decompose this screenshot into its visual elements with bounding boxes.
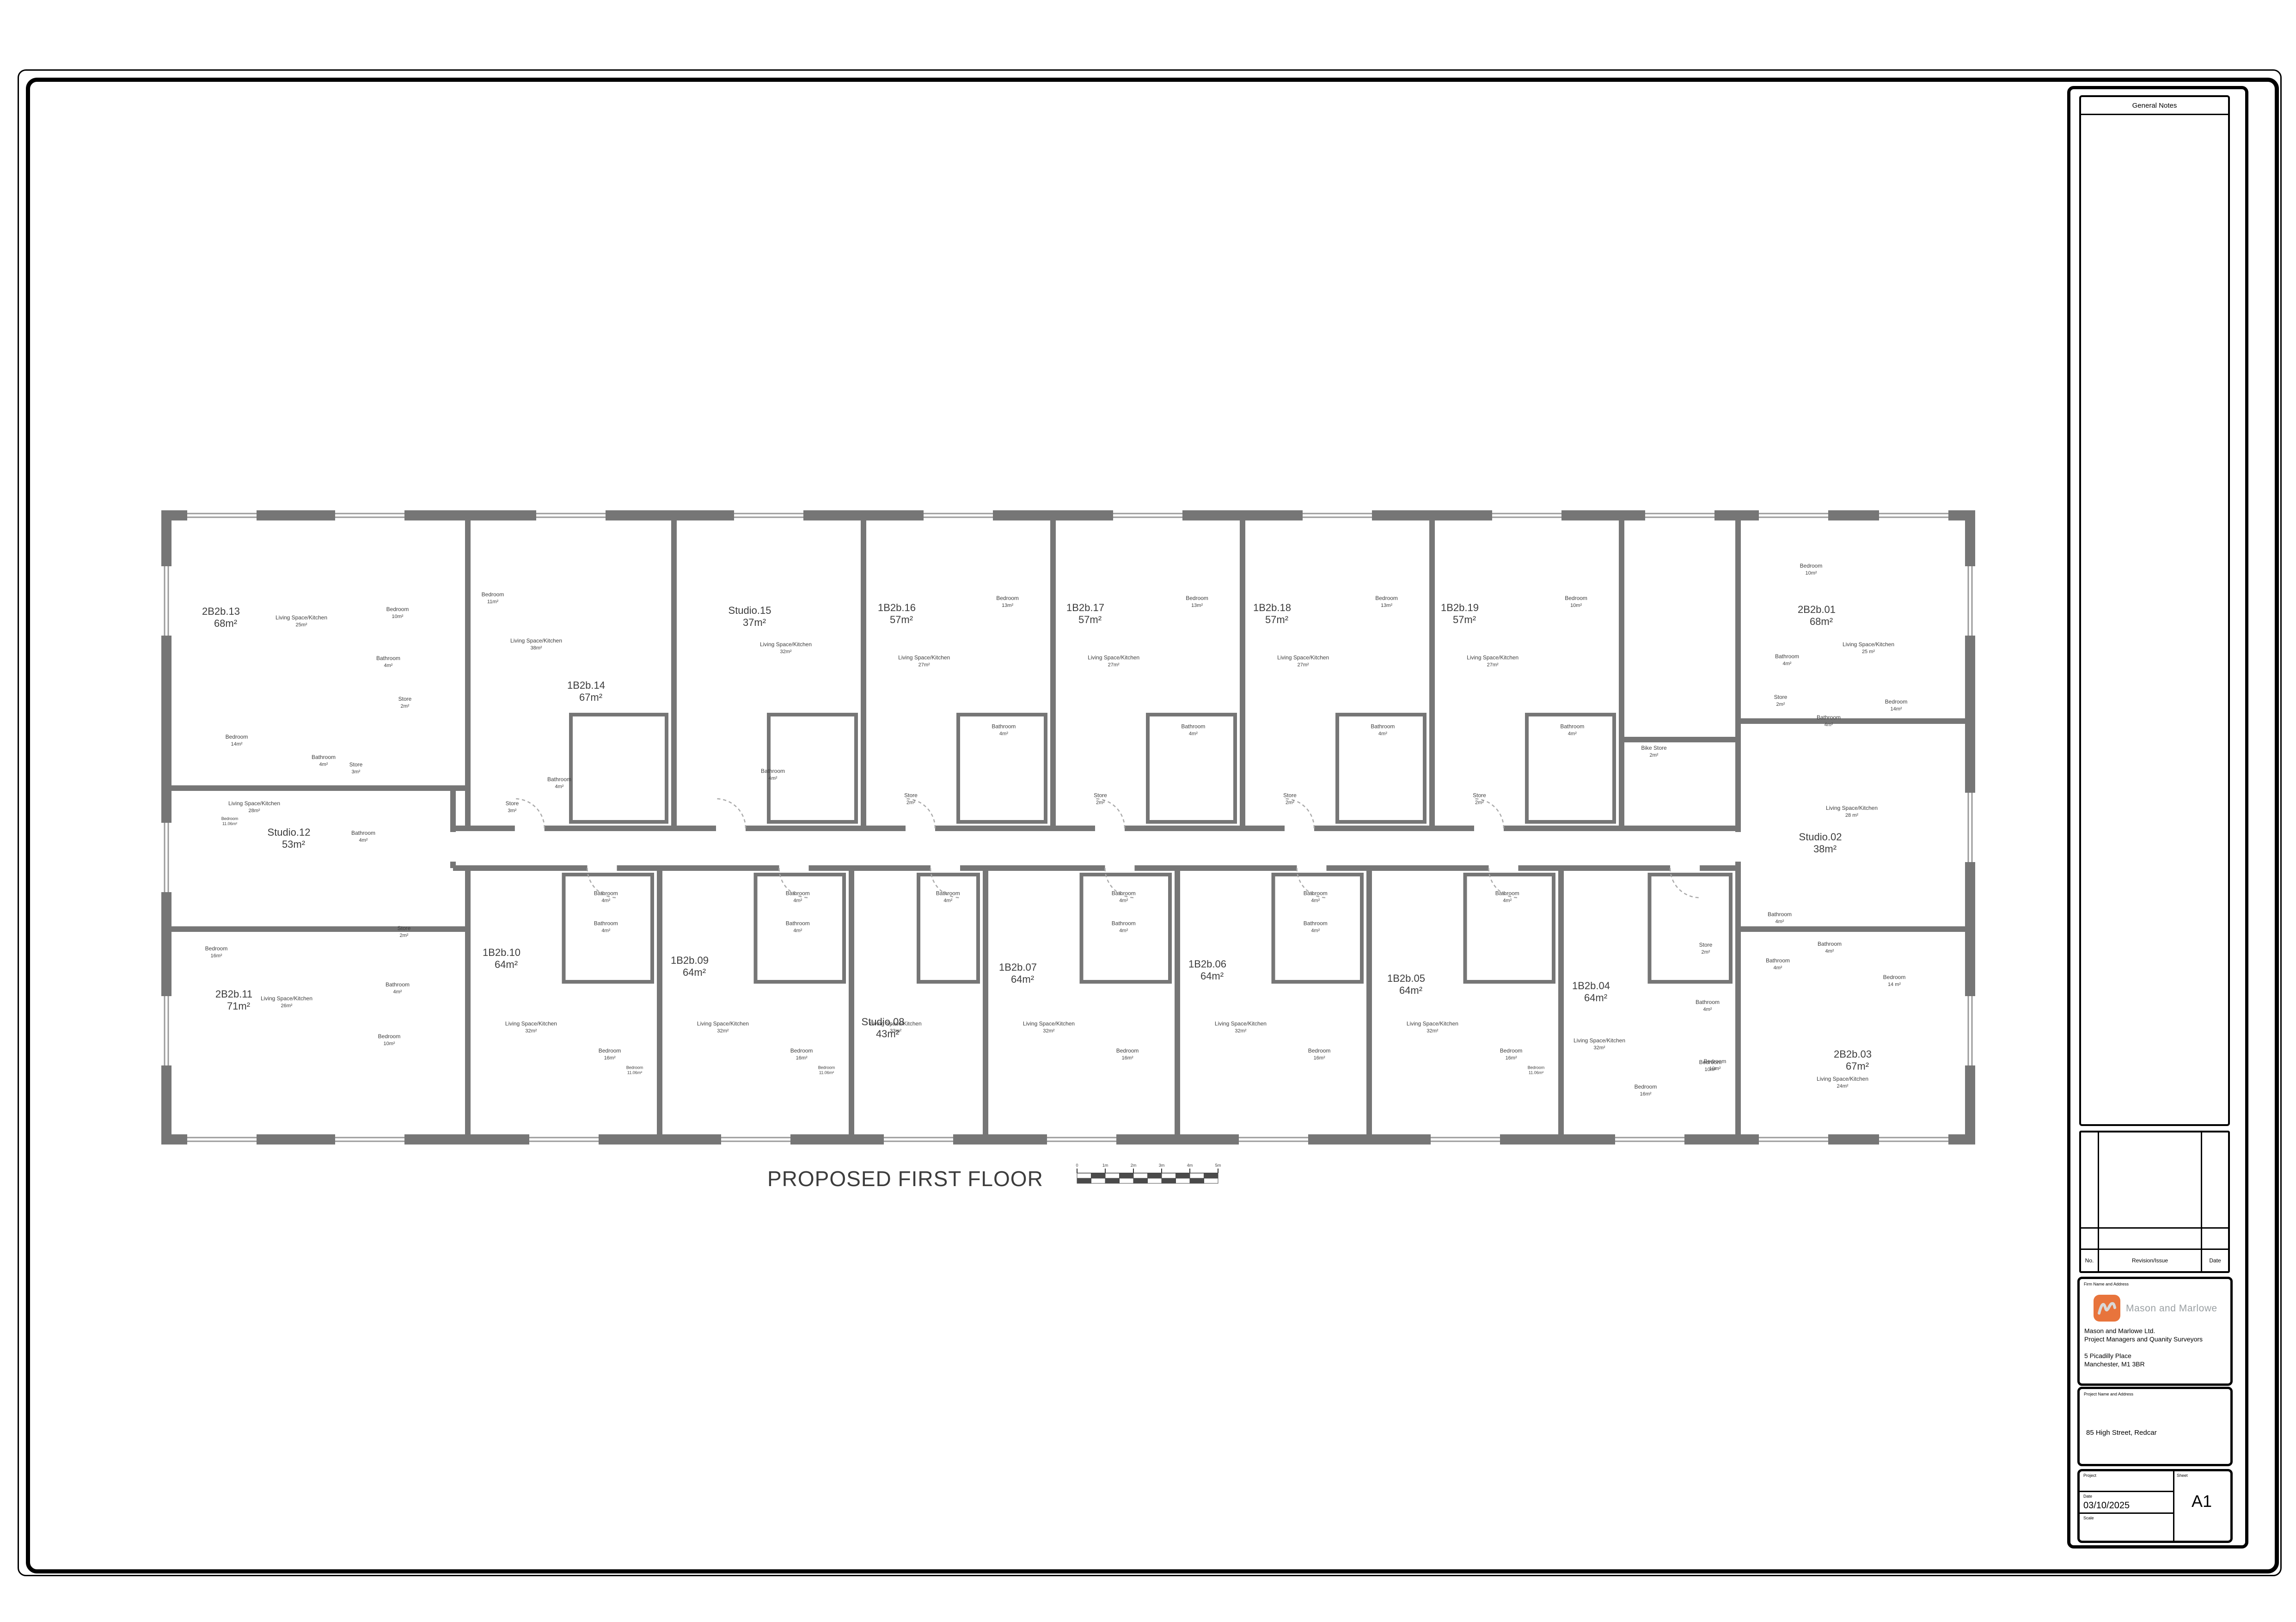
project-name: 85 High Street, Redcar	[2086, 1429, 2157, 1437]
info-sheet-cell: Sheet A1	[2173, 1471, 2230, 1541]
general-notes-box: General Notes	[2079, 95, 2230, 1126]
info-block: Project Date 03/10/2025 Scale Sheet A1	[2077, 1469, 2233, 1543]
info-date-label: Date	[2083, 1494, 2092, 1499]
firm-address-line2: Manchester, M1 3BR	[2084, 1360, 2145, 1368]
revision-table: No. Revision/Issue Date	[2079, 1131, 2230, 1273]
info-scale-label: Scale	[2083, 1516, 2094, 1520]
general-notes-title: General Notes	[2081, 97, 2228, 115]
mason-marlowe-logo-icon	[2094, 1295, 2120, 1322]
info-project-row: Project	[2080, 1471, 2173, 1492]
firm-block: Firm Name and Address Mason and Marlowe …	[2077, 1277, 2233, 1386]
info-scale-row: Scale	[2080, 1514, 2173, 1541]
project-block: Project Name and Address 85 High Street,…	[2077, 1387, 2233, 1466]
revision-table-line	[2081, 1227, 2228, 1229]
firm-section-label: Firm Name and Address	[2084, 1282, 2129, 1286]
info-left-column: Project Date 03/10/2025 Scale	[2080, 1471, 2174, 1541]
revision-col-revision: Revision/Issue	[2098, 1250, 2202, 1271]
info-project-label: Project	[2083, 1473, 2096, 1478]
info-date-value: 03/10/2025	[2083, 1500, 2130, 1511]
info-date-row: Date 03/10/2025	[2080, 1492, 2173, 1514]
info-sheet-label: Sheet	[2177, 1473, 2188, 1478]
revision-col-date: Date	[2202, 1250, 2228, 1271]
sheet-border-inner	[26, 78, 2279, 1573]
firm-company-role: Project Managers and Quanity Surveyors	[2084, 1335, 2203, 1343]
project-section-label: Project Name and Address	[2084, 1392, 2133, 1396]
firm-brand-name: Mason and Marlowe	[2126, 1303, 2217, 1314]
firm-address-line1: 5 Picadilly Place	[2084, 1352, 2131, 1359]
info-sheet-value: A1	[2173, 1492, 2230, 1511]
drawing-sheet: 2B2b.0168m²Living Space/Kitchen25 m²Bedr…	[0, 0, 2296, 1622]
firm-company-name: Mason and Marlowe Ltd.	[2084, 1327, 2155, 1334]
revision-col-no: No.	[2081, 1250, 2098, 1271]
